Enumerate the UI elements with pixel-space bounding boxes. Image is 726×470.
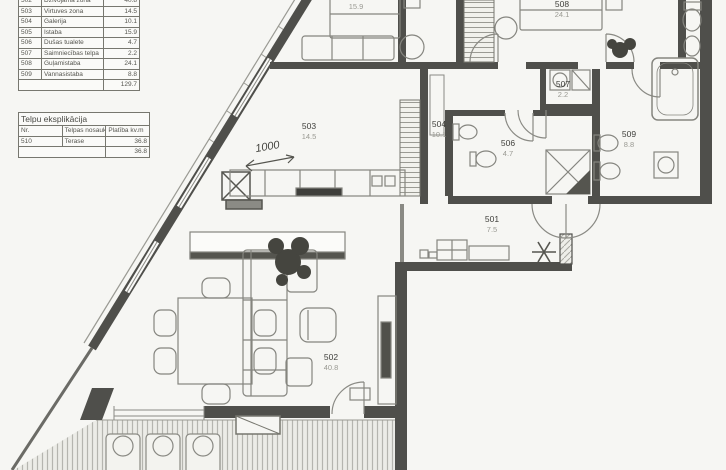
svg-text:7.5: 7.5 [487, 225, 497, 234]
table-total-row: 129.7 [19, 80, 140, 91]
room-nr: 504 [19, 17, 42, 28]
room-name: Istaba [42, 27, 104, 38]
doormat [350, 388, 370, 400]
total-area: 129.7 [104, 80, 140, 91]
table-row: 506 Dušas tualete 4.7 [19, 38, 140, 49]
bed-505 [330, 0, 400, 38]
svg-text:14.5: 14.5 [302, 132, 317, 141]
room-area: 15.9 [104, 27, 140, 38]
coffee-table [286, 358, 312, 386]
terrace-area [14, 420, 397, 470]
room-label-501: 501 7.5 [485, 214, 499, 234]
room-name: Galerija [42, 17, 104, 28]
room-area: 36.8 [106, 136, 150, 147]
total-spacer [19, 147, 106, 158]
tv-icon [381, 322, 391, 378]
table-header-row: Nr. Telpas nosaukums Platība kv.m [19, 126, 150, 137]
room-name: Terase [62, 136, 106, 147]
terrace-lounge-chairs [106, 434, 220, 470]
table-row: 507 Saimniecības telpa 2.2 [19, 48, 140, 59]
shower-icon [546, 150, 590, 194]
toilet-icon [470, 151, 496, 167]
room-nr: 505 [19, 27, 42, 38]
room-area: 8.8 [104, 69, 140, 80]
room-area: 24.1 [104, 59, 140, 70]
room-label-509: 509 8.8 [622, 129, 636, 149]
tv-console [378, 296, 396, 404]
room-label-502: 502 40.8 [324, 352, 339, 372]
header-name: Telpas nosaukums [62, 126, 106, 137]
header-area: Platība kv.m [106, 126, 150, 137]
chair [495, 17, 517, 39]
armchair [300, 308, 336, 342]
dimension-1000: 1000 [246, 139, 294, 171]
living-room-window [114, 406, 204, 420]
room-name: Virtuves zona [42, 6, 104, 17]
cooktop-icon [296, 188, 342, 196]
sink-icon [453, 124, 477, 140]
nightstand [404, 0, 420, 8]
table-row: 508 Guļamistaba 24.1 [19, 59, 140, 70]
room-label-503: 503 14.5 [302, 121, 317, 141]
plant-icon [607, 38, 636, 58]
tall-cabinet-strip [400, 100, 420, 196]
entrance-asterisk-icon [532, 242, 556, 262]
room-label-505: 505 15.9 [349, 0, 364, 11]
room-name: Saimniecības telpa [42, 48, 104, 59]
svg-text:508: 508 [555, 0, 569, 9]
exterior-box [236, 416, 280, 434]
terrace-door [332, 382, 364, 414]
dining-table [154, 278, 276, 404]
kitchen-counter [230, 170, 405, 196]
svg-text:506: 506 [501, 138, 515, 148]
svg-text:40.8: 40.8 [324, 363, 339, 372]
room-area: 14.5 [104, 6, 140, 17]
room-area: 10.1 [104, 17, 140, 28]
room-nr: 508 [19, 59, 42, 70]
room-nr: 507 [19, 48, 42, 59]
washer-icon [654, 152, 678, 178]
table-total-row: 36.8 [19, 147, 150, 158]
hall-partition [400, 204, 404, 262]
hall-bench [437, 240, 467, 260]
wall-corner-piece [80, 388, 114, 420]
svg-text:501: 501 [485, 214, 499, 224]
svg-text:502: 502 [324, 352, 338, 362]
room-name: Guļamistaba [42, 59, 104, 70]
svg-text:507: 507 [556, 79, 570, 89]
nightstand [606, 0, 622, 10]
room-label-506: 506 4.7 [501, 138, 515, 158]
kitchen-island [190, 232, 345, 259]
room-nr: 510 [19, 136, 63, 147]
header-nr: Nr. [19, 126, 63, 137]
svg-text:4.7: 4.7 [503, 149, 513, 158]
table-row: 510 Terase 36.8 [19, 136, 150, 147]
hall-item [420, 250, 428, 258]
svg-text:24.1: 24.1 [555, 10, 570, 19]
shoe-cabinet [469, 246, 509, 260]
explication-table: Telpu eksplikācija Nr. Telpas nosaukums … [18, 112, 150, 158]
room-area: 4.7 [104, 38, 140, 49]
wardrobe-strip [464, 0, 494, 62]
room-nr: 509 [19, 69, 42, 80]
total-spacer [19, 80, 104, 91]
table-row: 505 Istaba 15.9 [19, 27, 140, 38]
table-row: 504 Galerija 10.1 [19, 17, 140, 28]
room-name: Dušas tualete [42, 38, 104, 49]
table-row: 509 Vannasistaba 8.8 [19, 69, 140, 80]
room-label-507: 507 2.2 [556, 79, 570, 99]
room-label-508: 508 24.1 [555, 0, 570, 19]
couch-505 [302, 36, 394, 60]
svg-text:8.8: 8.8 [624, 140, 634, 149]
floor-plan-sheet: 1000 501 7.5 502 40.8 503 14.5 504 10.1 … [0, 0, 726, 470]
svg-text:1000: 1000 [254, 139, 281, 155]
hall-item [429, 252, 437, 258]
table-title: Telpu eksplikācija [19, 113, 150, 126]
svg-text:10.1: 10.1 [432, 130, 447, 139]
svg-text:503: 503 [302, 121, 316, 131]
kitchen-sink-icon [372, 176, 382, 186]
room-nr: 506 [19, 38, 42, 49]
room-area: 2.2 [104, 48, 140, 59]
room-schedule-table: 502 Dzīvojamā zona 40.8 503 Virtuves zon… [18, 0, 140, 91]
entrance-door [532, 204, 600, 238]
bidet-icon [684, 36, 700, 56]
room-name: Vannasistaba [42, 69, 104, 80]
table-title-row: Telpu eksplikācija [19, 113, 150, 126]
svg-text:504: 504 [432, 119, 446, 129]
svg-text:15.9: 15.9 [349, 2, 364, 11]
shaft-box [222, 172, 262, 209]
svg-text:2.2: 2.2 [558, 90, 568, 99]
room-nr: 503 [19, 6, 42, 17]
total-area: 36.8 [106, 147, 150, 158]
svg-text:509: 509 [622, 129, 636, 139]
table-row: 503 Virtuves zona 14.5 [19, 6, 140, 17]
